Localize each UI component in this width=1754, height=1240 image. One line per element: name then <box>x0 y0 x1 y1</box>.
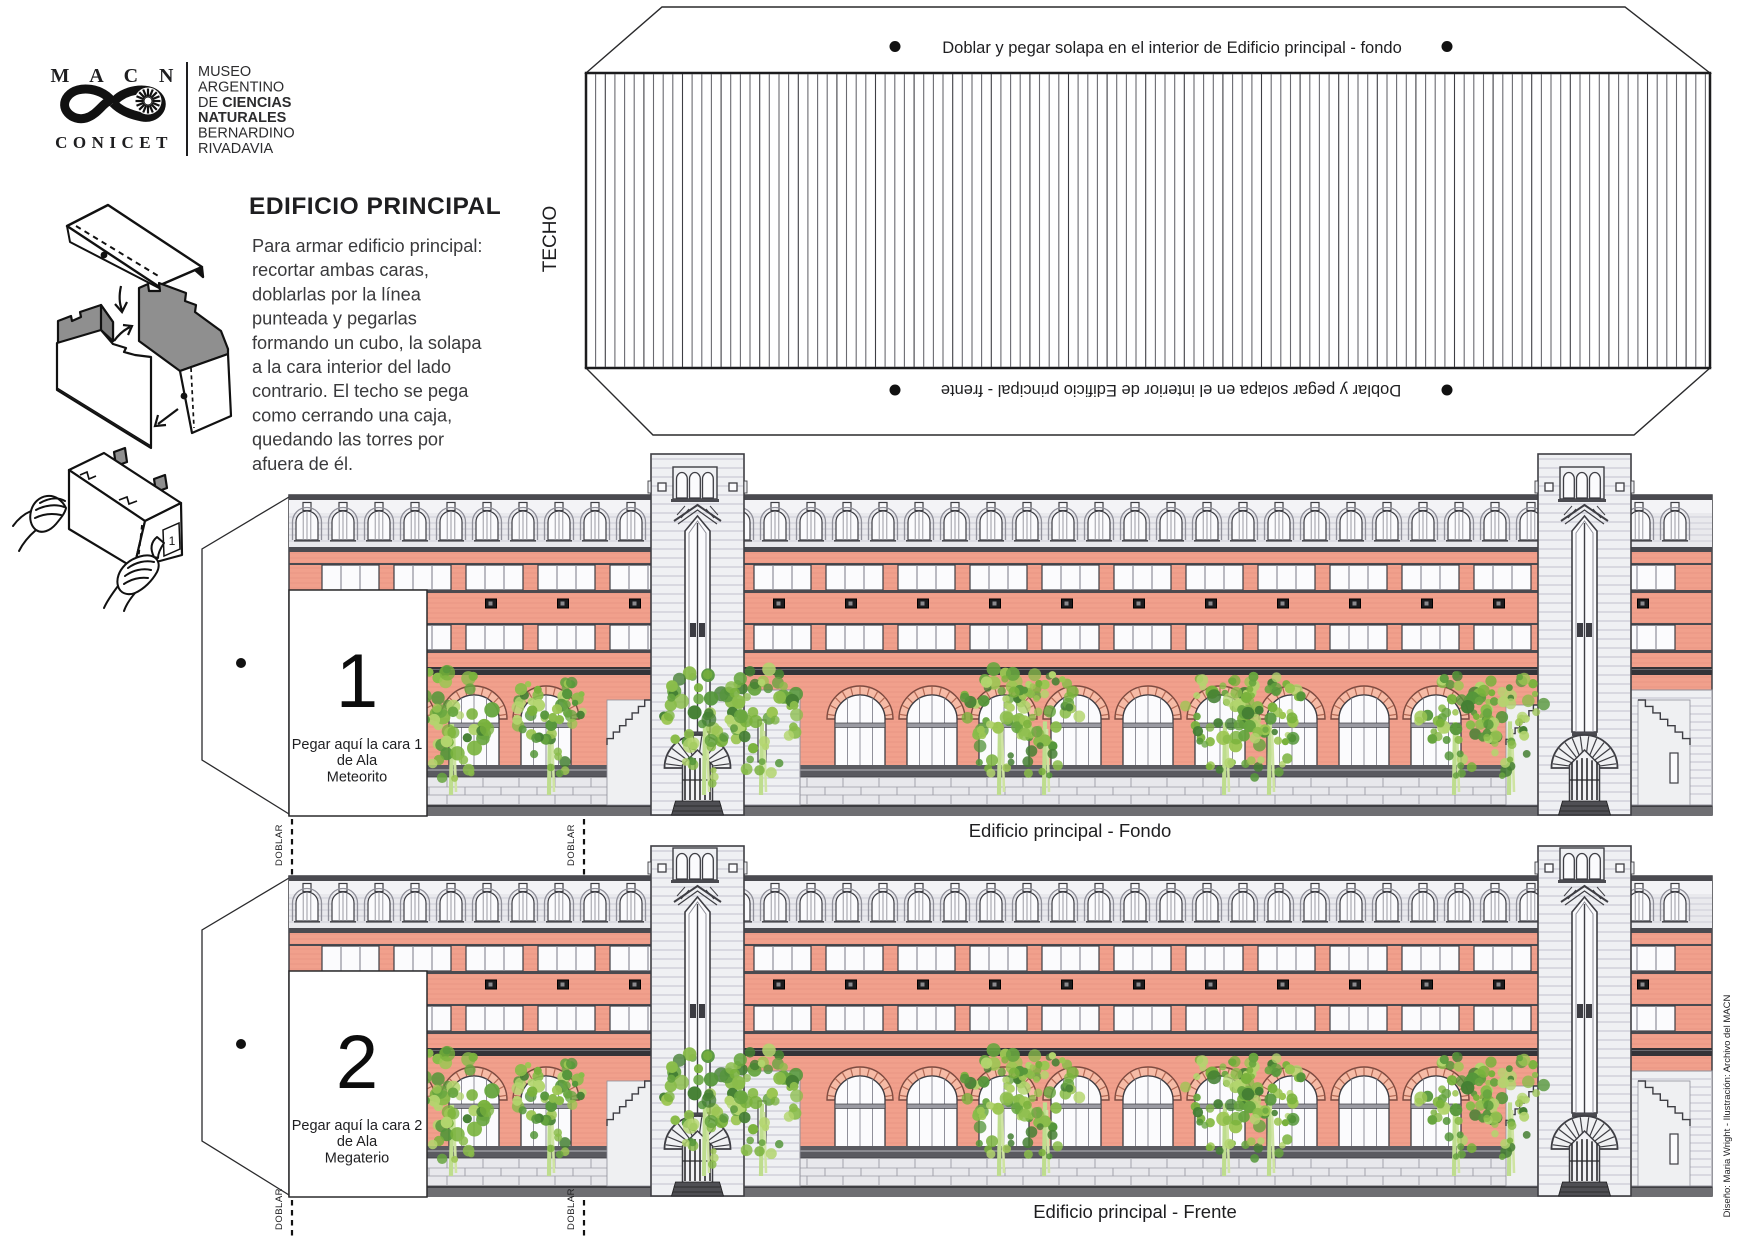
svg-text:CONICET: CONICET <box>55 133 173 152</box>
svg-text:DOBLAR: DOBLAR <box>274 1188 285 1230</box>
svg-text:DOBLAR: DOBLAR <box>566 1188 577 1230</box>
svg-text:Pegar aquí la cara 1: Pegar aquí la cara 1 <box>292 737 423 753</box>
svg-text:2: 2 <box>336 1020 378 1105</box>
svg-text:Meteorito: Meteorito <box>327 769 387 785</box>
svg-text:a la cara interior del lado: a la cara interior del lado <box>252 357 451 377</box>
svg-text:Edificio principal - Fondo: Edificio principal - Fondo <box>969 820 1172 841</box>
svg-text:ARGENTINO: ARGENTINO <box>198 79 284 95</box>
svg-text:M A C N: M A C N <box>51 65 182 87</box>
svg-text:Para armar edificio principal:: Para armar edificio principal: <box>252 236 482 256</box>
svg-text:de Ala: de Ala <box>337 753 378 769</box>
svg-text:RIVADAVIA: RIVADAVIA <box>198 141 274 157</box>
svg-text:contrario. El techo se pega: contrario. El techo se pega <box>252 381 469 401</box>
svg-text:como cerrando una caja,: como cerrando una caja, <box>252 405 452 425</box>
svg-text:recortar ambas caras,: recortar ambas caras, <box>252 260 429 280</box>
svg-text:1: 1 <box>169 534 176 548</box>
svg-text:MUSEO: MUSEO <box>198 64 251 80</box>
svg-text:DE CIENCIAS: DE CIENCIAS <box>198 95 292 111</box>
svg-text:Megaterio: Megaterio <box>325 1150 389 1166</box>
svg-text:punteada y pegarlas: punteada y pegarlas <box>252 309 417 329</box>
svg-text:quedando las torres por: quedando las torres por <box>252 430 444 450</box>
svg-text:de Ala: de Ala <box>337 1134 378 1150</box>
svg-text:EDIFICIO PRINCIPAL: EDIFICIO PRINCIPAL <box>249 193 501 220</box>
svg-text:formando un cubo, la solapa: formando un cubo, la solapa <box>252 333 482 353</box>
svg-text:Edificio principal - Frente: Edificio principal - Frente <box>1033 1201 1237 1222</box>
svg-text:NATURALES: NATURALES <box>198 110 287 126</box>
svg-text:doblarlas por la línea: doblarlas por la línea <box>252 284 422 304</box>
svg-text:afuera de él.: afuera de él. <box>252 454 353 474</box>
svg-text:Pegar aquí la cara 2: Pegar aquí la cara 2 <box>292 1118 423 1134</box>
svg-text:BERNARDINO: BERNARDINO <box>198 126 295 142</box>
svg-text:Doblar y pegar solapa en el in: Doblar y pegar solapa en el interior de … <box>941 381 1401 399</box>
svg-text:DOBLAR: DOBLAR <box>274 824 285 866</box>
svg-text:Diseño: Maria Wright - Ilustra: Diseño: Maria Wright - Ilustración: Arch… <box>1722 995 1733 1218</box>
svg-text:DOBLAR: DOBLAR <box>566 824 577 866</box>
svg-text:Doblar y pegar solapa en el in: Doblar y pegar solapa en el interior de … <box>942 39 1402 57</box>
svg-text:1: 1 <box>336 639 378 724</box>
svg-text:TECHO: TECHO <box>540 206 561 273</box>
